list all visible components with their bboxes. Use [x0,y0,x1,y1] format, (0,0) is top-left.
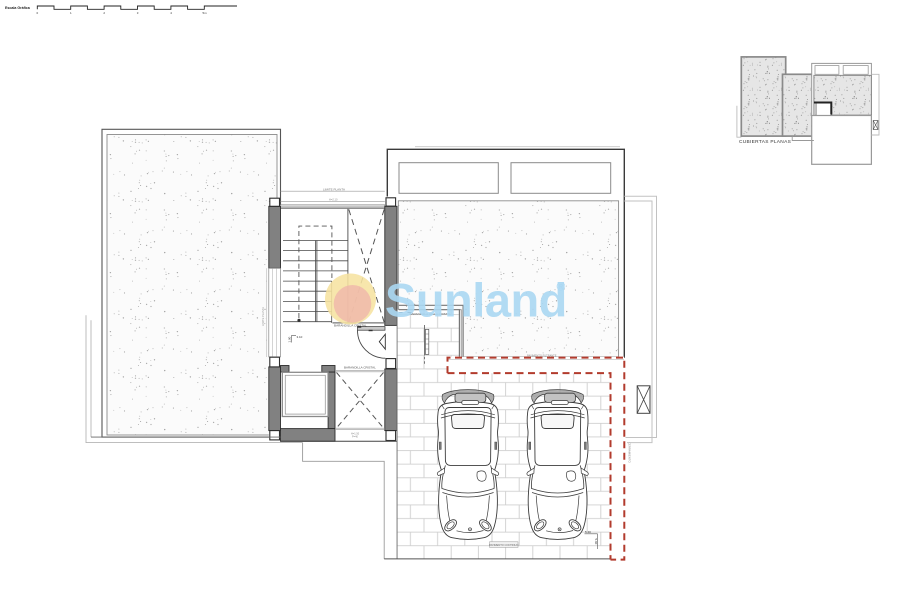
svg-text:CUBIERTAS PLANAS: CUBIERTAS PLANAS [739,139,791,145]
svg-text:CERRAMIENTO: CERRAMIENTO [628,442,632,463]
svg-text:3.10: 3.10 [297,335,303,339]
svg-text:H=2.10: H=2.10 [329,198,338,202]
svg-text:PAVIMENTO CONTINUO: PAVIMENTO CONTINUO [489,543,518,547]
svg-text:5.60: 5.60 [594,539,598,545]
svg-text:5m: 5m [203,11,208,15]
svg-text:5.40: 5.40 [585,530,591,534]
svg-text:Sunland: Sunland [385,274,567,327]
svg-text:BARANDILLA CRISTAL: BARANDILLA CRISTAL [344,366,376,370]
svg-text:LIMITE PLANTA: LIMITE PLANTA [261,307,265,326]
svg-text:Escala Gráfica: Escala Gráfica [5,6,31,10]
svg-text:1.90: 1.90 [288,336,292,342]
svg-text:®: ® [557,280,566,294]
svg-text:P=40: P=40 [352,436,359,439]
svg-text:LIMITE PLANTA: LIMITE PLANTA [323,187,345,191]
